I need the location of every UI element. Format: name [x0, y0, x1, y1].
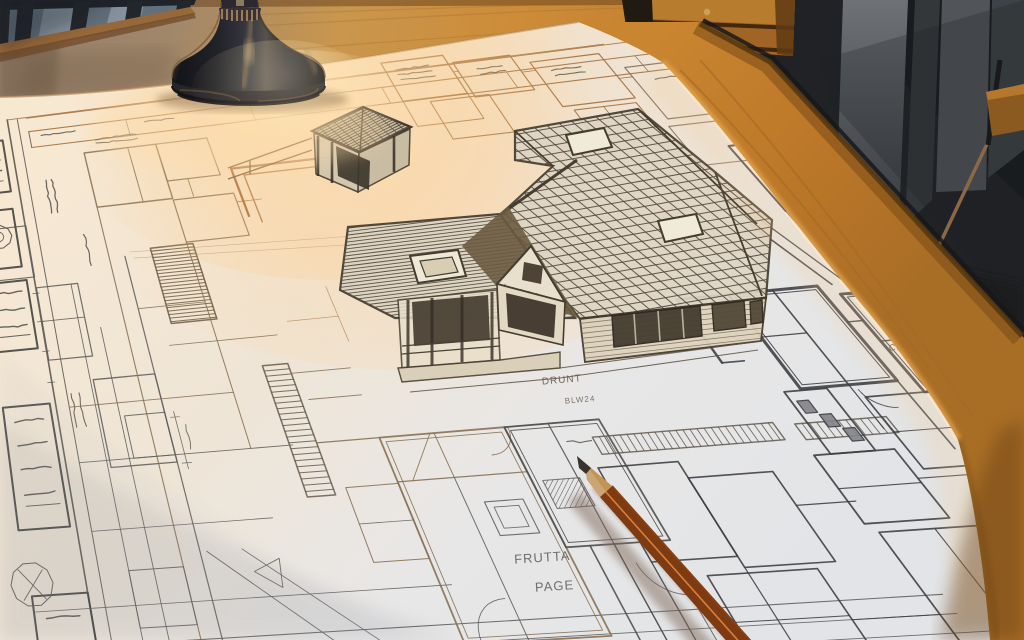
svg-text:PAGE: PAGE [535, 577, 575, 594]
